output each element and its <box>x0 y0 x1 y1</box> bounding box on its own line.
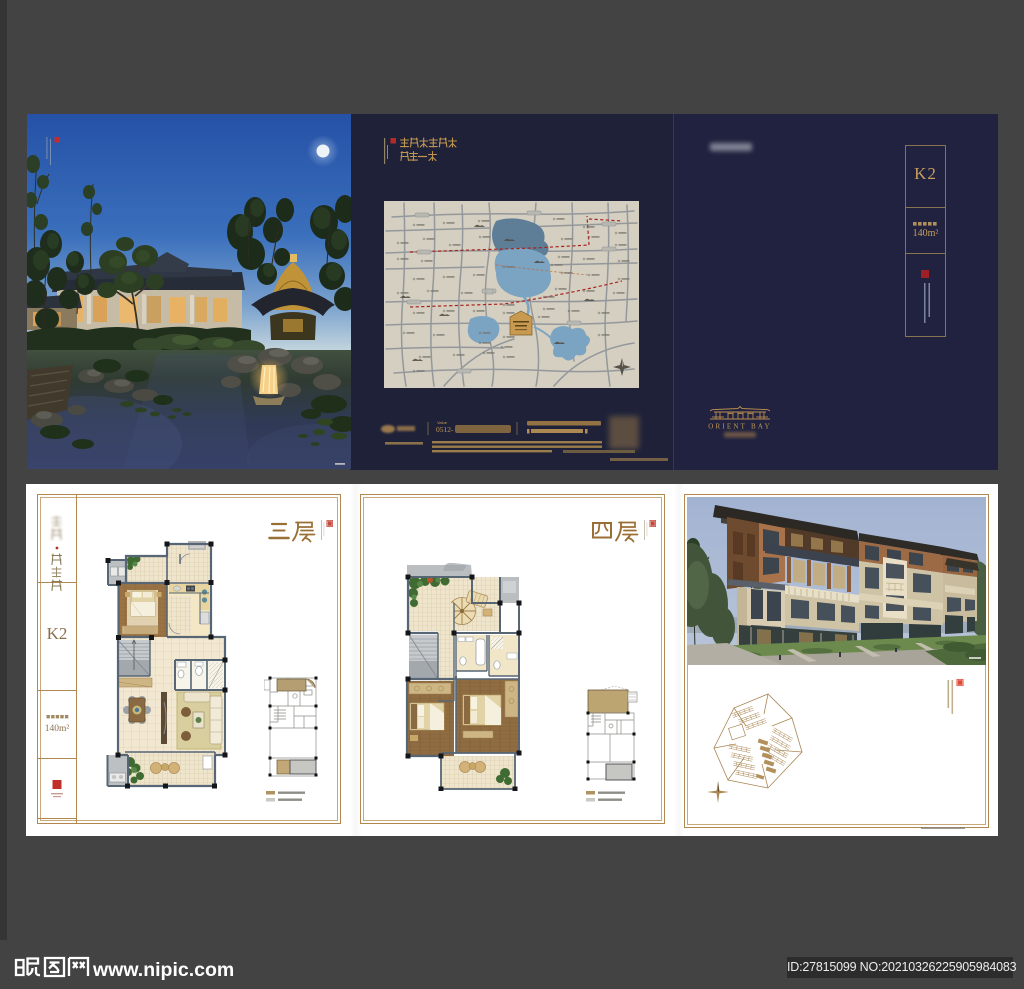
svg-text:K2: K2 <box>47 624 68 643</box>
svg-text:140m²: 140m² <box>45 724 70 734</box>
svg-text:0512-: 0512- <box>436 425 454 434</box>
svg-text:www.nipic.com: www.nipic.com <box>92 959 234 981</box>
svg-text:ORIENT BAY: ORIENT BAY <box>708 423 771 431</box>
